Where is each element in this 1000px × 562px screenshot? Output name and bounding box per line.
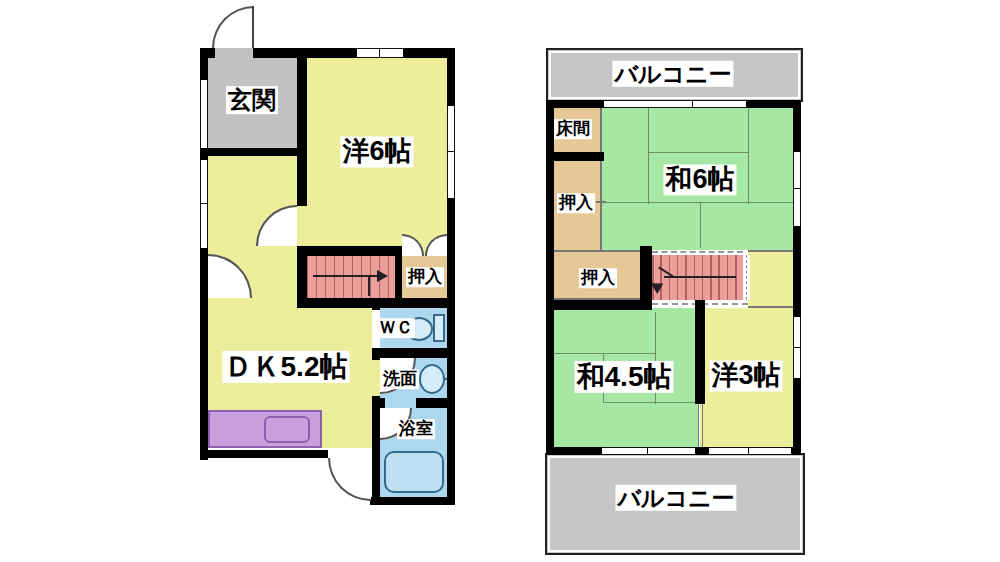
stairwell-top-dashed-edge <box>652 251 743 253</box>
closet-2f-mid-top-line <box>552 250 642 252</box>
hall-western3-door-line <box>748 306 793 308</box>
window-genkan-left <box>200 80 208 148</box>
label-balcony-bottom: バルコニー <box>615 485 736 511</box>
closet-2f-left-fusuma-line <box>600 158 602 250</box>
window-hallway-left <box>200 160 208 248</box>
stairs-1f-arrowhead-icon <box>377 270 388 282</box>
floor-plan-canvas: 玄関 洋6帖 押入 ＤＫ5.2帖 ＷＣ 洗面 浴室 <box>0 0 1000 562</box>
stairs-2f-arrow-icon <box>664 276 736 278</box>
label-western3: 洋3帖 <box>709 360 782 391</box>
window-western3-bottom <box>709 447 791 455</box>
window-japanese6-top <box>604 100 746 108</box>
label-japanese45: 和4.5帖 <box>575 361 674 393</box>
label-genkan: 玄関 <box>226 86 278 114</box>
bathtub-icon <box>384 451 444 493</box>
room-hallway-2f <box>748 252 795 308</box>
label-closet-1f: 押入 <box>406 267 444 287</box>
window-western6-right <box>447 106 455 198</box>
stairs-1f-arrow-tail <box>368 277 370 296</box>
window-japanese45-bottom <box>602 447 695 455</box>
entrance-door-arc <box>212 6 254 48</box>
kitchen-sink-icon <box>264 416 310 443</box>
stairwell-edge-line <box>746 255 747 300</box>
japanese45-western3-sliding-door <box>698 404 699 447</box>
entrance-door-leaf <box>252 6 254 48</box>
label-balcony-top: バルコニー <box>612 61 733 87</box>
label-tokonoma: 床間 <box>554 119 592 139</box>
washbasin-icon <box>419 364 445 394</box>
label-washroom: 洗面 <box>381 369 419 389</box>
label-dk: ＤＫ5.2帖 <box>223 351 350 383</box>
tokonoma-fusuma-line <box>600 106 602 154</box>
toilet-tank-icon <box>433 314 445 342</box>
window-western6-top <box>357 48 403 58</box>
window-japanese6-right <box>793 152 801 226</box>
label-western6: 洋6帖 <box>340 136 413 167</box>
label-japanese6: 和6帖 <box>663 164 736 195</box>
label-wc: ＷＣ <box>377 318 415 338</box>
stairs-1f-arrow-icon <box>313 275 383 277</box>
label-closet-2f-mid: 押入 <box>579 268 617 288</box>
label-bathroom: 浴室 <box>397 419 435 439</box>
label-closet-2f-left: 押入 <box>557 193 595 213</box>
dk-backdoor-arc <box>328 458 371 501</box>
